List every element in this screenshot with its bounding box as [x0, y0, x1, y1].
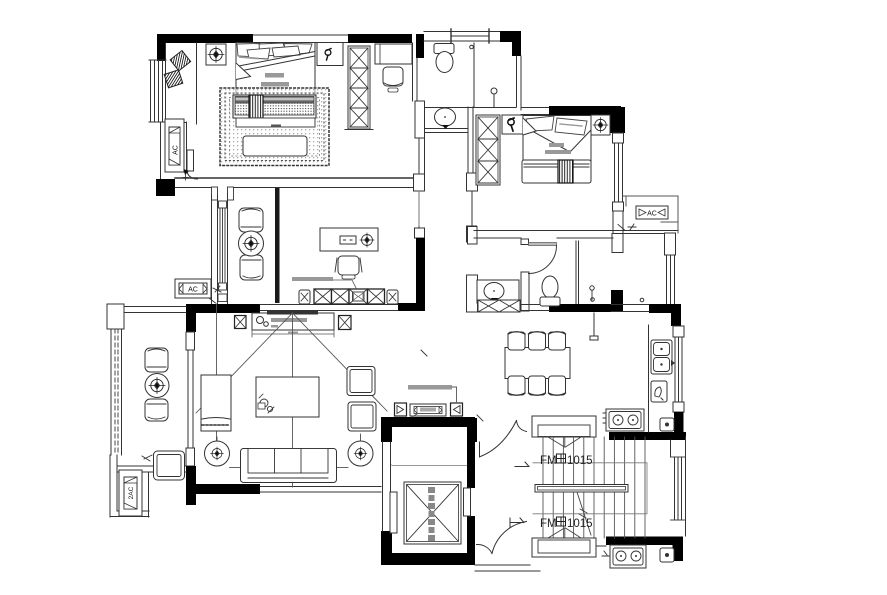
- svg-text:AC: AC: [188, 287, 198, 294]
- svg-text:1015: 1015: [567, 518, 593, 530]
- svg-text:FM: FM: [540, 518, 557, 530]
- svg-text:AC: AC: [173, 145, 180, 155]
- svg-text:1015: 1015: [567, 455, 593, 467]
- svg-text:FM: FM: [540, 455, 557, 467]
- svg-text:2AC: 2AC: [128, 486, 135, 499]
- svg-text:AC: AC: [647, 211, 657, 218]
